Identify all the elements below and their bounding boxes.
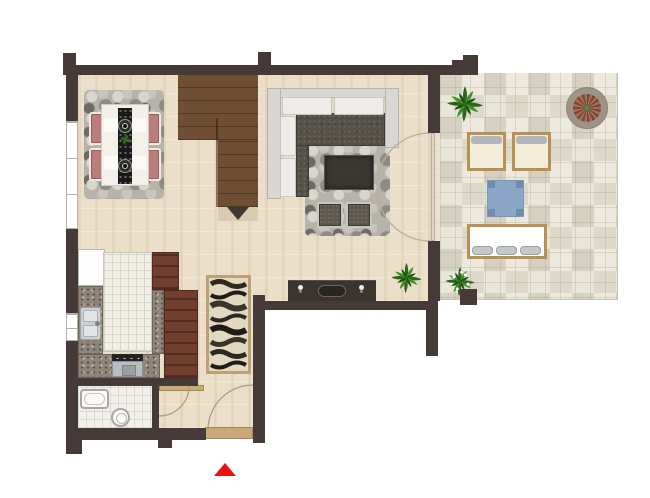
stairs-arrow-icon [227, 207, 249, 220]
terrace-armchair [467, 132, 506, 171]
faucet [95, 321, 100, 326]
staircase-lower-flight [218, 140, 258, 207]
wall [152, 386, 159, 430]
round-mosaic-planter [566, 87, 608, 129]
kitchen-cabinet [152, 252, 179, 290]
table-plant [118, 132, 133, 147]
wall-pillar [63, 53, 76, 75]
french-door-frame [431, 133, 435, 241]
wall-pillar [463, 55, 478, 65]
planter-core [583, 104, 592, 113]
sofa-cushion [282, 97, 332, 115]
candlestick [298, 285, 303, 290]
wall [66, 75, 78, 121]
planter-foliage [573, 94, 601, 122]
staircase-landing [218, 207, 258, 221]
window [66, 313, 78, 341]
wall-pillar [258, 52, 271, 65]
terrace-armchair [512, 132, 551, 171]
decor-plate [118, 119, 132, 133]
ottoman [346, 202, 372, 228]
wall [426, 301, 438, 356]
staircase-upper-flight [178, 75, 258, 140]
wave-runner-rug [206, 275, 251, 374]
cooktop [112, 354, 143, 361]
coffee-table [324, 155, 374, 190]
bathtub [80, 389, 109, 409]
wall [265, 301, 428, 310]
terrace-bench [467, 224, 547, 259]
sofa-cushion [280, 116, 296, 156]
armchair-cushion [516, 136, 547, 144]
wall-pillar [66, 440, 82, 454]
media-sideboard [288, 280, 376, 302]
toilet [111, 408, 130, 427]
wall [66, 378, 198, 386]
refrigerator [78, 249, 105, 286]
wall-pillar [460, 289, 477, 305]
bench-cushion [496, 246, 517, 255]
kitchen-sink [80, 307, 101, 340]
kitchen-island [103, 252, 152, 352]
wall [66, 428, 206, 440]
sink-basin [83, 325, 98, 337]
entrance-arrow-icon [214, 463, 236, 476]
wall-pillar [158, 440, 172, 448]
decor-bowl [318, 285, 346, 297]
window [66, 121, 78, 229]
staircase-divider [216, 118, 218, 207]
living-room-plant [390, 256, 423, 300]
wall [253, 295, 265, 443]
candlestick [359, 285, 364, 290]
wall [63, 65, 478, 75]
sofa-seat [296, 113, 385, 146]
armchair-cushion [471, 136, 502, 144]
sofa-cushion [334, 97, 384, 115]
terrace-blue-table [487, 180, 524, 217]
wall [428, 241, 440, 301]
wall [428, 65, 440, 133]
bench-cushion [472, 246, 493, 255]
decor-plate [118, 159, 132, 173]
terrace-palm-plant [447, 80, 483, 128]
sofa-armrest [385, 88, 399, 148]
wall [66, 229, 78, 313]
sofa-cushion [280, 158, 296, 197]
entrance-doormat [205, 427, 253, 439]
ottoman [317, 202, 343, 228]
granite-counter [152, 290, 164, 354]
kitchen-tall-cabinet [164, 290, 198, 378]
bench-cushion [520, 246, 541, 255]
sofa-armrest [267, 88, 281, 199]
floor-plan [0, 18, 650, 498]
oven [112, 361, 143, 377]
sofa-seat [296, 145, 309, 197]
stove [112, 354, 143, 377]
wall-step [452, 60, 463, 65]
